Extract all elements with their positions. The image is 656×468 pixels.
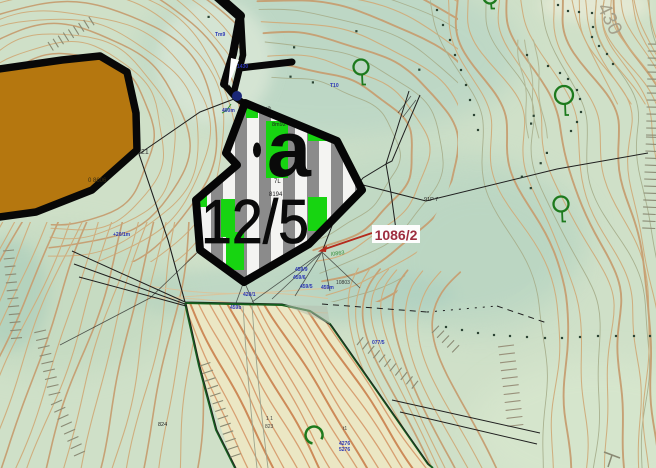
svg-text:0 8606: 0 8606	[88, 178, 107, 184]
svg-text:824: 824	[158, 422, 167, 428]
svg-text:12/5: 12/5	[201, 188, 309, 257]
svg-text:077/5: 077/5	[372, 340, 385, 346]
svg-text:5276: 5276	[339, 447, 350, 453]
svg-text:823: 823	[265, 424, 274, 430]
svg-text:+20/1m: +20/1m	[113, 232, 131, 238]
svg-text:t1: t1	[343, 426, 347, 432]
svg-text:1 1: 1 1	[266, 416, 273, 422]
svg-text:T10: T10	[330, 83, 339, 89]
svg-text:459/6: 459/6	[293, 275, 306, 281]
svg-text:459b: 459b	[230, 305, 241, 311]
svg-text:1086/2: 1086/2	[375, 227, 418, 243]
svg-text:400m: 400m	[222, 108, 235, 114]
svg-text:a: a	[267, 104, 312, 193]
svg-text:10803: 10803	[336, 280, 350, 286]
svg-text:Tm9: Tm9	[215, 32, 226, 38]
svg-text:91P 7: 91P 7	[424, 197, 438, 203]
svg-text:459/9: 459/9	[295, 267, 308, 273]
svg-text:459m: 459m	[321, 285, 334, 291]
svg-text:420/1: 420/1	[243, 292, 256, 298]
svg-text:459/5: 459/5	[300, 284, 313, 290]
svg-text:21: 21	[141, 149, 149, 156]
svg-text:1430: 1430	[237, 64, 248, 70]
